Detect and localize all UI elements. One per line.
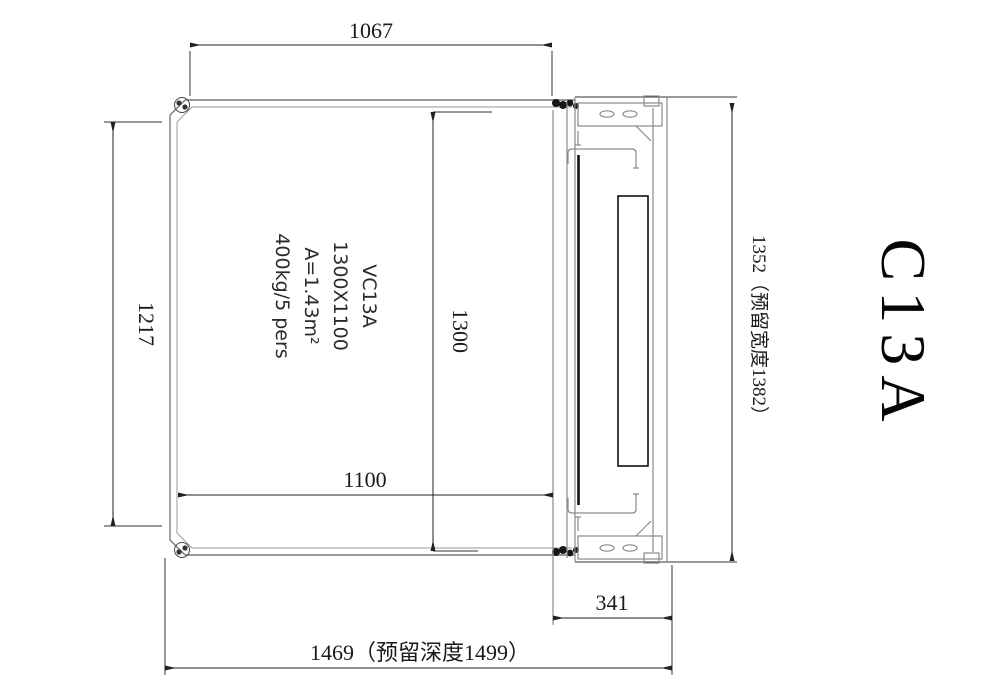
- door-header-bottom: [568, 494, 662, 563]
- cabin-annotation-model: VC13A: [358, 264, 380, 327]
- cabin-annotation: VC13A 1300X1100 A=1.43m² 400kg/5 pers: [271, 233, 380, 358]
- dim-label-1100: 1100: [343, 467, 386, 492]
- corner-fixing-bottom-left: [175, 543, 190, 558]
- dim-label-1300: 1300: [448, 309, 473, 353]
- dimension-top-width: 1067: [190, 18, 552, 96]
- elevator-cabin-plan-drawing: 1067 1217 1300 1100 341 1352（预留宽度1382） 1…: [0, 0, 1000, 700]
- corner-fixing-top-left: [175, 98, 190, 113]
- dimension-total-reserved-depth: 1469（预留深度1499）: [165, 558, 672, 675]
- door-assembly: [553, 96, 737, 625]
- drawing-model-title: C13A: [868, 239, 939, 432]
- dim-label-341: 341: [596, 590, 629, 615]
- landing-door-panel: [618, 196, 648, 466]
- dim-label-1469-reserved: 1469（预留深度1499）: [310, 640, 530, 665]
- dimension-cabin-depth: 1300: [433, 112, 492, 551]
- technical-drawing-page: 1067 1217 1300 1100 341 1352（预留宽度1382） 1…: [0, 0, 1000, 700]
- cabin-annotation-size: 1300X1100: [329, 241, 351, 351]
- door-header-top: [568, 96, 662, 168]
- dim-label-1352-reserved: 1352（预留宽度1382）: [748, 235, 770, 425]
- cabin-annotation-area: A=1.43m²: [300, 247, 322, 344]
- dimension-left-height: 1217: [104, 122, 162, 526]
- dim-label-1067: 1067: [349, 18, 393, 43]
- dimension-cabin-width: 1100: [178, 467, 553, 495]
- dimension-door-depth: 341: [553, 565, 672, 675]
- dimension-right-reserved-width: 1352（预留宽度1382）: [732, 103, 770, 561]
- dim-label-1217: 1217: [134, 302, 159, 346]
- cabin-annotation-capacity: 400kg/5 pers: [271, 233, 293, 358]
